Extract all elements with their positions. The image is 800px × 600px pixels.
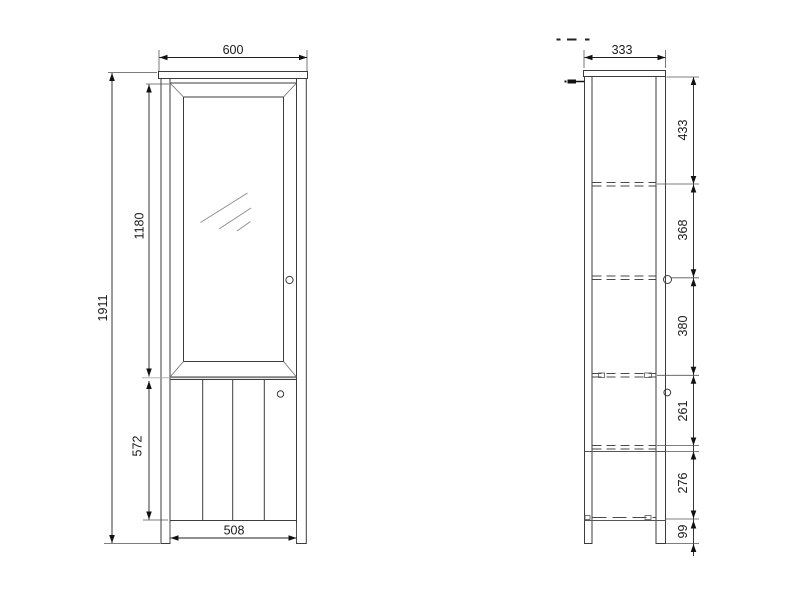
glass-reflection — [201, 193, 252, 231]
dim-depth: 333 — [612, 43, 633, 57]
fitting-marks — [585, 373, 652, 520]
side-dimensions: 333 433 368 380 261 276 — [584, 43, 699, 556]
hidden-shelf-lines — [585, 183, 666, 521]
dim-lower-section-height: 572 — [131, 436, 145, 457]
fastener-icon — [565, 80, 585, 84]
side-view — [557, 40, 672, 544]
cabinet-dimension-drawing: 600 1911 1180 572 508 — [0, 0, 800, 600]
dim-segment-5: 276 — [676, 473, 690, 494]
front-right-stile — [297, 79, 307, 544]
glass-door — [170, 83, 297, 377]
side-top-board — [584, 71, 666, 77]
side-back-panel — [585, 77, 593, 544]
dim-door-width: 508 — [224, 524, 245, 538]
upper-door-knob-icon — [286, 276, 293, 283]
dim-segment-2: 368 — [676, 220, 690, 241]
dim-segment-6: 99 — [676, 525, 690, 539]
dim-overall-height: 1911 — [96, 295, 110, 322]
front-dimensions: 600 1911 1180 572 508 — [96, 43, 307, 544]
lower-door — [170, 380, 297, 521]
lower-door-knob-icon — [277, 391, 283, 397]
front-view — [142, 72, 308, 544]
dim-glass-door-height: 1180 — [133, 213, 147, 240]
technical-drawing-page: 600 1911 1180 572 508 — [0, 0, 800, 600]
front-top-board — [159, 72, 308, 79]
side-front-panel — [656, 77, 666, 544]
dim-segment-1: 433 — [676, 120, 690, 141]
front-left-stile — [161, 79, 170, 544]
dim-overall-width: 600 — [223, 43, 244, 57]
dim-segment-4: 261 — [676, 401, 690, 422]
dim-segment-3: 380 — [676, 316, 690, 337]
